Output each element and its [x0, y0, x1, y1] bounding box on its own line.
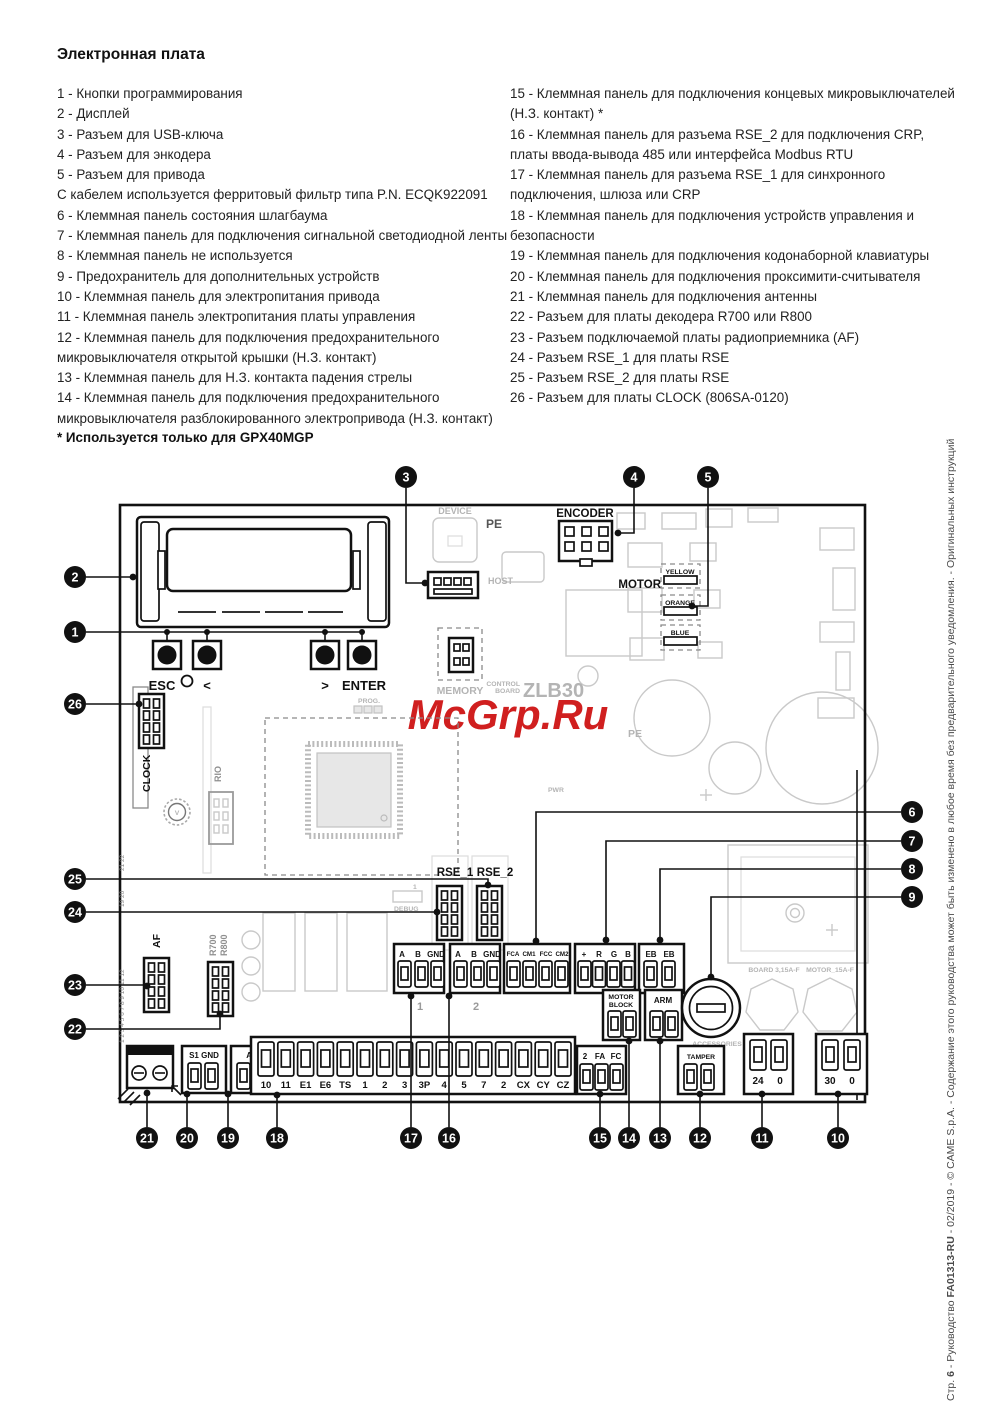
clock-label: CLOCK — [141, 754, 153, 792]
svg-text:A: A — [455, 950, 461, 959]
r700-label: R700 — [208, 934, 218, 956]
blue-label: BLUE — [671, 630, 690, 637]
v-trimmer[interactable]: V — [164, 799, 190, 825]
svg-text:+: + — [582, 950, 587, 959]
antenna-terminal — [118, 1046, 181, 1105]
control-label: CONTROL — [486, 681, 520, 688]
terminal-abgnd-2: A B GND 2 — [450, 944, 501, 1013]
svg-text:5: 5 — [705, 471, 712, 485]
legend-item: 2 - Дисплей — [57, 104, 509, 124]
legend-item: 4 - Разъем для энкодера — [57, 145, 509, 165]
svg-text:13: 13 — [653, 1132, 667, 1146]
device-label: DEVICE — [438, 506, 472, 516]
callout-9: 9 — [901, 886, 923, 908]
rse2-label: RSE_2 — [477, 867, 513, 879]
board-fuse-label: BOARD 3,15A-F — [748, 967, 799, 974]
legend-item: 9 - Предохранитель для дополнительных ус… — [57, 267, 509, 287]
svg-text:E6: E6 — [320, 1080, 332, 1091]
terminal-fca-cm: FCA CM1 FCC CM2 — [504, 944, 570, 993]
pwr-label: PWR — [548, 787, 564, 794]
svg-text:20: 20 — [180, 1132, 194, 1146]
svg-text:S1 GND: S1 GND — [189, 1051, 219, 1060]
svg-text:4: 4 — [631, 471, 638, 485]
callout-12: 12 — [689, 1127, 711, 1149]
svg-text:CM2: CM2 — [555, 951, 569, 958]
af-connector: AF — [144, 933, 169, 1012]
board-diagram: 1 2 3 4 5 6 7 8 9 10 11 12 19 20 21 22 — [40, 455, 960, 1167]
svg-text:14: 14 — [622, 1132, 636, 1146]
legend-right: 15 - Клеммная панель для подключения кон… — [510, 84, 958, 409]
callout-5: 5 — [697, 466, 719, 488]
legend-item: С кабелем используется ферритовый фильтр… — [57, 185, 509, 205]
right-label: > — [321, 678, 329, 693]
svg-text:24: 24 — [752, 1076, 764, 1087]
svg-text:FCA: FCA — [507, 951, 520, 958]
usb-device-connector: DEVICE — [433, 506, 477, 562]
r800-label: R800 — [219, 934, 229, 956]
svg-text:18: 18 — [270, 1132, 284, 1146]
prog-label: PROG. — [358, 698, 380, 705]
rio-connector: RIO — [209, 766, 233, 844]
motor-fuse-label: MOTOR_15A-F — [806, 967, 854, 974]
callout-17: 17 — [400, 1127, 422, 1149]
legend-item: 24 - Разъем RSE_1 для платы RSE — [510, 348, 958, 368]
legend-item: 16 - Клеммная панель для разъема RSE_2 д… — [510, 125, 958, 166]
svg-text:22: 22 — [68, 1023, 82, 1037]
footer-part: - Руководство — [945, 1297, 957, 1371]
callout-11: 11 — [751, 1127, 773, 1149]
svg-text:GND: GND — [427, 950, 445, 959]
rse-port2-number: 2 — [473, 1001, 479, 1013]
svg-text:10: 10 — [261, 1080, 272, 1091]
svg-text:3: 3 — [402, 1080, 407, 1091]
svg-text:CZ: CZ — [557, 1080, 570, 1091]
svg-text:B: B — [471, 950, 477, 959]
svg-text:0: 0 — [849, 1076, 855, 1087]
legend-item: 17 - Клеммная панель для разъема RSE_1 д… — [510, 165, 958, 206]
legend-item: 5 - Разъем для привода — [57, 165, 509, 185]
led-indicator — [182, 676, 193, 687]
pe-label-mid: PE — [628, 728, 642, 740]
callout-20: 20 — [176, 1127, 198, 1149]
svg-text:B: B — [415, 950, 421, 959]
debug-pin1: 1 — [413, 884, 417, 891]
enter-button[interactable] — [348, 641, 376, 669]
svg-text:2: 2 — [583, 1052, 588, 1061]
svg-text:ARM: ARM — [654, 996, 673, 1005]
page-title: Электронная плата — [57, 46, 205, 64]
svg-text:11: 11 — [281, 1080, 292, 1091]
svg-text:7: 7 — [481, 1080, 486, 1091]
page-footer: Стр. 6 - Руководство FA01313-RU - 02/201… — [945, 439, 957, 1401]
r700-r800-connector: R700 R800 — [208, 934, 233, 1016]
rio-label: RIO — [213, 766, 223, 782]
callout-8: 8 — [901, 858, 923, 880]
legend-item: 14 - Клеммная панель для подключения пре… — [57, 388, 509, 429]
svg-text:23: 23 — [68, 979, 82, 993]
svg-text:2: 2 — [382, 1080, 387, 1091]
svg-text:12: 12 — [693, 1132, 707, 1146]
manual-page: Электронная плата 1 - Кнопки программиро… — [0, 0, 1000, 1415]
terminal-motorblock: MOTOR BLOCK — [603, 990, 640, 1040]
footer-doc-code: FA01313-RU — [945, 1236, 957, 1297]
esc-button[interactable] — [153, 641, 181, 669]
programming-buttons[interactable]: ESC < > ENTER — [149, 641, 387, 693]
callout-25: 25 — [64, 868, 86, 890]
svg-text:10: 10 — [831, 1132, 845, 1146]
svg-text:17: 17 — [404, 1132, 418, 1146]
callout-24: 24 — [64, 901, 86, 923]
rse1-label: RSE_1 — [437, 867, 474, 879]
footer-part: Стр. — [945, 1377, 957, 1401]
yellow-label: YELLOW — [665, 569, 695, 576]
svg-text:3P: 3P — [419, 1080, 431, 1091]
legend-item: 10 - Клеммная панель для электропитания … — [57, 287, 509, 307]
watermark: McGrp.Ru — [408, 691, 609, 738]
svg-text:19: 19 — [221, 1132, 235, 1146]
svg-text:7: 7 — [909, 835, 916, 849]
left-label: < — [203, 678, 211, 693]
encoder-label: ENCODER — [556, 508, 614, 520]
svg-text:6: 6 — [909, 806, 916, 820]
legend-item: 7 - Клеммная панель для подключения сигн… — [57, 226, 509, 246]
svg-text:FC: FC — [611, 1052, 622, 1061]
legend-item: 15 - Клеммная панель для подключения кон… — [510, 84, 958, 125]
callout-18: 18 — [266, 1127, 288, 1149]
encoder-connector: ENCODER — [556, 508, 614, 566]
svg-text:A: A — [399, 950, 405, 959]
right-button[interactable] — [311, 641, 339, 669]
callout-1: 1 — [64, 621, 86, 643]
svg-text:4: 4 — [442, 1080, 448, 1091]
callout-7: 7 — [901, 830, 923, 852]
svg-text:26: 26 — [68, 698, 82, 712]
callout-15: 15 — [589, 1127, 611, 1149]
callout-6: 6 — [901, 801, 923, 823]
v-label: V — [175, 810, 180, 817]
svg-text:21 22: 21 22 — [119, 854, 126, 871]
svg-text:G: G — [611, 950, 617, 959]
svg-text:2: 2 — [501, 1080, 506, 1091]
footer-part: - 02/2019 - © CAME S.p.A. - Содержание э… — [945, 439, 957, 1237]
svg-text:CM1: CM1 — [522, 951, 536, 958]
svg-text:1 2 3 4 5 6 7 8 9 10 11 12: 1 2 3 4 5 6 7 8 9 10 11 12 — [119, 969, 126, 1043]
terminal-arm: ARM — [645, 990, 682, 1040]
callout-21: 21 — [136, 1127, 158, 1149]
cpu-chip — [265, 718, 458, 875]
legend-item: 26 - Разъем для платы CLOCK (806SA-0120) — [510, 388, 958, 408]
callout-16: 16 — [438, 1127, 460, 1149]
legend-item: 11 - Клеммная панель электропитания плат… — [57, 307, 509, 327]
legend-item: 8 - Клеммная панель не используется — [57, 246, 509, 266]
svg-text:TS: TS — [339, 1080, 351, 1091]
legend-left: 1 - Кнопки программирования2 - Дисплей3 … — [57, 84, 509, 429]
footnote: * Используется только для GPX40MGP — [57, 430, 314, 445]
footer-page-number: 6 — [945, 1371, 957, 1377]
svg-text:FA: FA — [595, 1052, 605, 1061]
legend-item: 25 - Разъем RSE_2 для платы RSE — [510, 368, 958, 388]
legend-item: 23 - Разъем подключаемой платы радиоприе… — [510, 328, 958, 348]
svg-text:11: 11 — [755, 1132, 768, 1146]
legend-item: 20 - Клеммная панель для подключения про… — [510, 267, 958, 287]
svg-text:FCC: FCC — [540, 951, 553, 958]
callout-19: 19 — [217, 1127, 239, 1149]
host-label: HOST — [488, 576, 514, 586]
pe-label-top: PE — [486, 517, 502, 531]
accessories-fuse: ACCESSORIES 2A-F — [682, 979, 742, 1056]
svg-text:GND: GND — [483, 950, 501, 959]
callout-26: 26 — [64, 693, 86, 715]
motor-label: MOTOR — [618, 579, 661, 591]
legend-item: 21 - Клеммная панель для подключения ант… — [510, 287, 958, 307]
terminal-rgb: + R G B — [575, 944, 635, 993]
svg-text:1: 1 — [362, 1080, 368, 1091]
svg-text:15: 15 — [593, 1132, 607, 1146]
legend-item: 18 - Клеммная панель для подключения уст… — [510, 206, 958, 247]
esc-label: ESC — [149, 678, 176, 693]
terminal-tamper: TAMPER — [678, 1046, 724, 1094]
legend-item: 13 - Клеммная панель для Н.З. контакта п… — [57, 368, 509, 388]
svg-text:EB: EB — [663, 950, 674, 959]
prog-pads: PROG. — [354, 698, 382, 713]
svg-text:24: 24 — [68, 906, 82, 920]
terminal-s1gnd: S1 GND — [182, 1046, 226, 1093]
callout-14: 14 — [618, 1127, 640, 1149]
left-button[interactable] — [193, 641, 221, 669]
callout-22: 22 — [64, 1018, 86, 1040]
legend-item: 12 - Клеммная панель для подключения пре… — [57, 328, 509, 369]
svg-text:16: 16 — [442, 1132, 456, 1146]
terminal-30-0: 30 0 — [816, 1034, 867, 1094]
callout-13: 13 — [649, 1127, 671, 1149]
antenna-symbol — [172, 1086, 181, 1095]
svg-text:B: B — [625, 950, 631, 959]
legend-item: 3 - Разъем для USB-ключа — [57, 125, 509, 145]
terminal-ebeb: EB EB — [639, 944, 684, 993]
svg-text:R: R — [596, 950, 602, 959]
memory-connector: MEMORY — [437, 628, 484, 697]
svg-text:21: 21 — [140, 1132, 154, 1146]
svg-text:25: 25 — [68, 873, 82, 887]
svg-text:30: 30 — [824, 1076, 836, 1087]
legend-item: 1 - Кнопки программирования — [57, 84, 509, 104]
callout-2: 2 — [64, 566, 86, 588]
svg-text:0: 0 — [777, 1076, 783, 1087]
rse2-connector — [477, 886, 502, 940]
rse1-connector — [437, 886, 462, 940]
svg-text:MOTOR: MOTOR — [608, 994, 633, 1001]
legend-item: 22 - Разъем для платы декодера R700 или … — [510, 307, 958, 327]
svg-text:EB: EB — [645, 950, 656, 959]
legend-item: 19 - Клеммная панель для подключения код… — [510, 246, 958, 266]
svg-text:2: 2 — [72, 571, 79, 585]
terminal-strip-main: 10 11 E1 E6 TS 1 2 3 3P 4 5 7 2 CX CY CZ — [251, 1037, 575, 1094]
usb-host-connector: HOST — [428, 572, 514, 598]
svg-text:5: 5 — [461, 1080, 467, 1091]
callout-3: 3 — [395, 466, 417, 488]
legend-item: 6 - Клеммная панель состояния шлагбаума — [57, 206, 509, 226]
svg-text:1: 1 — [72, 626, 79, 640]
terminal-abgnd-1: A B GND 1 — [394, 944, 445, 1013]
svg-text:CY: CY — [537, 1080, 551, 1091]
motor-wire-tabs: MOTOR YELLOW ORANGE BLUE — [618, 564, 700, 650]
terminal-24-0: 24 0 — [744, 1034, 793, 1094]
svg-text:TAMPER: TAMPER — [687, 1054, 715, 1061]
callout-10: 10 — [827, 1127, 849, 1149]
display-screen — [167, 529, 351, 591]
display-module — [137, 517, 389, 627]
svg-text:E1: E1 — [300, 1080, 312, 1091]
svg-text:BLOCK: BLOCK — [609, 1002, 633, 1009]
callout-4: 4 — [623, 466, 645, 488]
svg-text:9: 9 — [909, 891, 916, 905]
svg-text:CX: CX — [517, 1080, 531, 1091]
svg-text:8: 8 — [909, 863, 916, 877]
af-label: AF — [151, 933, 163, 948]
svg-text:19 20: 19 20 — [119, 890, 126, 907]
svg-text:3: 3 — [403, 471, 410, 485]
terminal-2fafc: 2 FA FC — [577, 1046, 626, 1094]
rse-connectors: RSE_1 RSE_2 1 DEBUG — [393, 867, 513, 940]
rse-port1-number: 1 — [417, 1001, 423, 1013]
callout-23: 23 — [64, 974, 86, 996]
enter-label: ENTER — [342, 678, 387, 693]
